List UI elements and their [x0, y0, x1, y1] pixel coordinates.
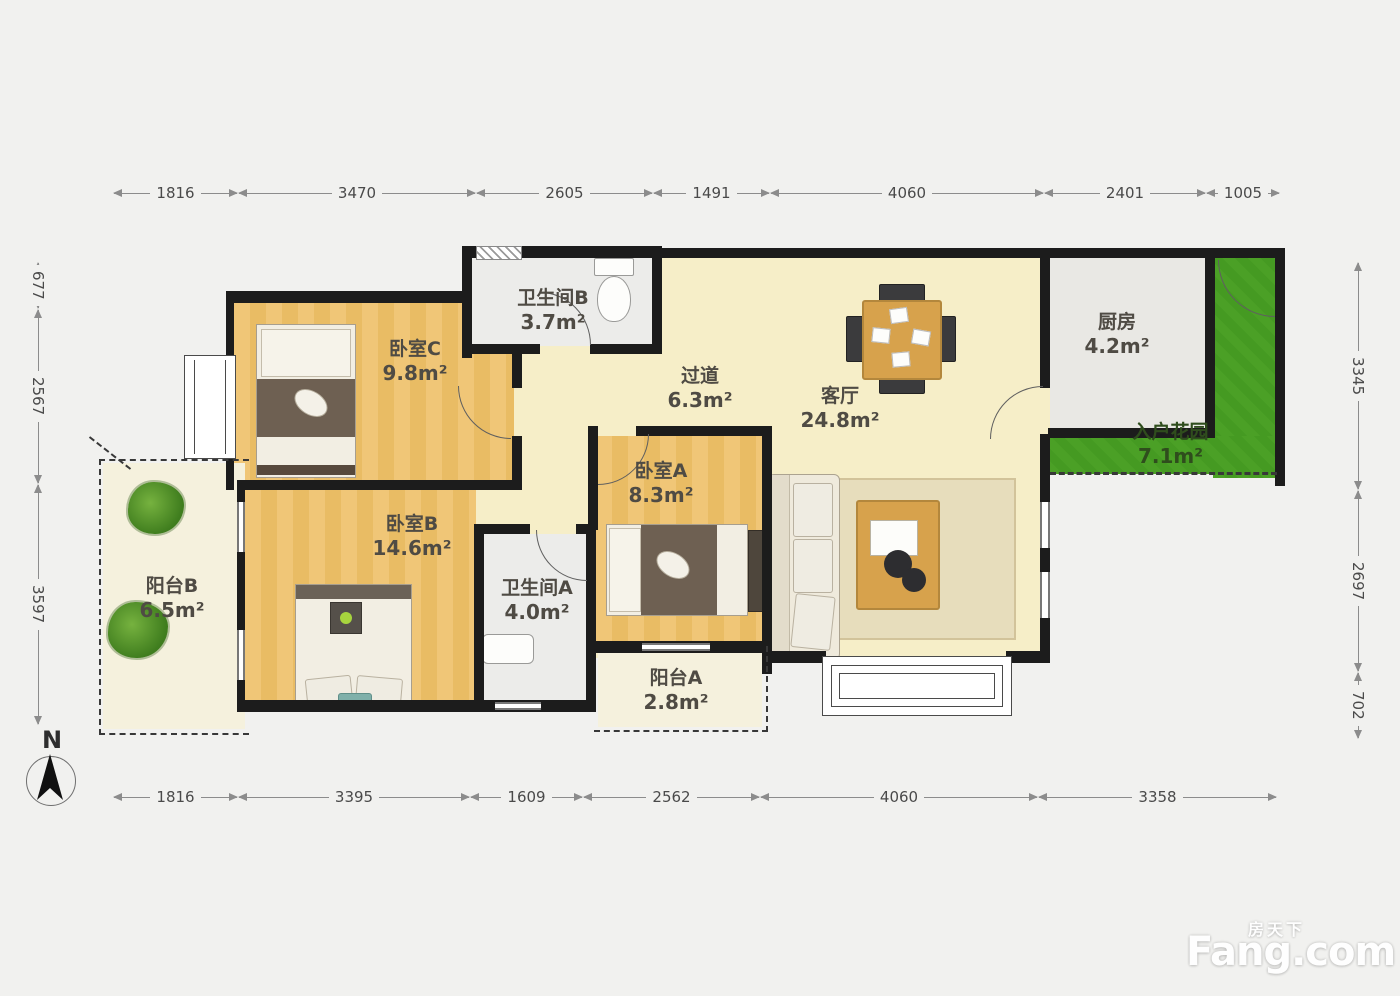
dining-table-icon [862, 300, 942, 380]
bed-icon [256, 324, 356, 478]
watermark-fang-logo: 房天下 Fang.com [1186, 916, 1390, 986]
dim-top-4: 4060 [770, 181, 1044, 205]
dim-value: 1816 [150, 184, 200, 202]
wall-segment [1275, 248, 1285, 486]
room-label-hallway: 过道 6.3m² [630, 364, 770, 414]
dim-value: 1816 [150, 788, 200, 806]
dim-value: 3358 [1132, 788, 1182, 806]
room-name: 卧室C [345, 337, 485, 361]
dim-value: 702 [1349, 685, 1367, 726]
dim-value: 3470 [332, 184, 382, 202]
dim-top-0: 1816 [113, 181, 238, 205]
room-area: 4.0m² [467, 600, 607, 626]
room-area: 2.8m² [606, 690, 746, 716]
plate-icon [871, 327, 890, 344]
room-name: 卧室A [591, 459, 731, 483]
dim-value: 1005 [1218, 184, 1268, 202]
room-label-balcony-b: 阳台B 6.5m² [102, 574, 242, 624]
dim-bottom-2: 1609 [470, 785, 583, 809]
nightstand-icon [330, 602, 362, 634]
room-area: 6.3m² [630, 388, 770, 414]
dim-right-0: 3345 [1346, 262, 1370, 490]
dim-value: 2562 [646, 788, 696, 806]
dim-bottom-0: 1816 [113, 785, 238, 809]
wall-segment [226, 291, 472, 303]
coffee-table-icon [856, 500, 940, 610]
room-label-bedroom-b: 卧室B 14.6m² [342, 512, 482, 562]
sofa-icon [768, 474, 840, 660]
room-name: 卫生间B [483, 286, 623, 310]
window-frame [225, 360, 226, 454]
wall-segment [237, 480, 520, 490]
compass-label: N [42, 726, 62, 754]
sofa-cushion [793, 539, 833, 593]
bay-window-living-room [822, 656, 1012, 716]
wall-segment [654, 248, 1285, 258]
wall-segment [226, 291, 234, 365]
wall-segment [237, 700, 596, 712]
sofa-cushion [790, 593, 835, 651]
window-bathroom-b [476, 246, 522, 260]
room-name: 卧室B [342, 512, 482, 536]
plate-icon [889, 307, 909, 324]
room-area: 4.2m² [1042, 334, 1192, 360]
sink-icon [482, 634, 534, 664]
room-area: 6.5m² [102, 598, 242, 624]
entry-garden-boundary [1050, 472, 1277, 475]
dim-value: 2605 [539, 184, 589, 202]
room-label-balcony-a: 阳台A 2.8m² [606, 666, 746, 716]
plate-icon [911, 329, 931, 347]
room-name: 厨房 [1042, 310, 1192, 334]
wall-segment [762, 426, 772, 674]
room-area: 3.7m² [483, 310, 623, 336]
dim-value: 3345 [1349, 351, 1367, 401]
room-area: 9.8m² [345, 361, 485, 387]
bed-pillow [261, 329, 351, 377]
dim-value: 4060 [874, 788, 924, 806]
dim-bottom-5: 3358 [1038, 785, 1277, 809]
watermark-en: Fang.com [1186, 929, 1395, 975]
room-name: 入户花园 [1093, 420, 1248, 444]
bed-headboard [296, 585, 411, 599]
dim-right-1: 2697 [1346, 490, 1370, 672]
room-area: 14.6m² [342, 536, 482, 562]
wall-segment [764, 651, 826, 663]
dim-right-2: 702 [1346, 672, 1370, 739]
room-label-bedroom-a: 卧室A 8.3m² [591, 459, 731, 509]
dim-value: 2401 [1100, 184, 1150, 202]
room-name: 阳台B [102, 574, 242, 598]
dim-left-1: 2567 [26, 309, 50, 484]
dim-value: 2567 [29, 371, 47, 421]
sofa-cushion [793, 483, 833, 537]
bed-icon [606, 524, 748, 616]
room-area: 7.1m² [1093, 444, 1248, 470]
dim-bottom-1: 3395 [238, 785, 470, 809]
room-name: 客厅 [768, 384, 912, 408]
wall-segment [474, 524, 530, 534]
wall-segment [636, 426, 772, 436]
dimension-row-top: 1816 3470 2605 1491 4060 2401 1005 [113, 181, 1280, 205]
bed-pillow [609, 528, 641, 612]
wall-segment [512, 352, 522, 388]
dim-left-2: 3597 [26, 484, 50, 725]
dim-top-5: 2401 [1044, 181, 1206, 205]
dim-value: 1491 [686, 184, 736, 202]
wall-segment [1040, 434, 1050, 490]
window-frame [194, 360, 195, 454]
room-label-living-room: 客厅 24.8m² [768, 384, 912, 434]
plate-icon [891, 351, 910, 368]
room-label-bathroom-a: 卫生间A 4.0m² [467, 576, 607, 626]
dim-value: 677 [29, 265, 47, 306]
dimension-row-bottom: 1816 3395 1609 2562 4060 3358 [113, 785, 1277, 809]
room-name: 卫生间A [467, 576, 607, 600]
sofa-backrest [769, 475, 790, 659]
dim-top-6: 1005 [1206, 181, 1280, 205]
room-label-bedroom-c: 卧室C 9.8m² [345, 337, 485, 387]
dim-top-2: 2605 [476, 181, 653, 205]
dim-top-1: 3470 [238, 181, 476, 205]
dim-bottom-3: 2562 [583, 785, 760, 809]
dim-left-0: 677 [26, 262, 50, 309]
room-name: 过道 [630, 364, 770, 388]
floorplan-canvas: 卧室C 9.8m² 卫生间B 3.7m² 过道 6.3m² 客厅 24.8m² … [0, 0, 1400, 996]
dim-value: 3597 [29, 579, 47, 629]
dim-bottom-4: 4060 [760, 785, 1038, 809]
toilet-tank [594, 258, 634, 276]
dimension-col-right: 3345 2697 702 [1346, 262, 1370, 739]
window-bay-bedroom-c [184, 355, 236, 459]
window-living-room [1040, 572, 1050, 618]
room-area: 8.3m² [591, 483, 731, 509]
dim-top-3: 1491 [653, 181, 770, 205]
room-area: 24.8m² [768, 408, 912, 434]
dim-value: 1609 [501, 788, 551, 806]
bed-footboard [257, 465, 355, 475]
room-label-kitchen: 厨房 4.2m² [1042, 310, 1192, 360]
wall-segment [590, 344, 662, 354]
room-label-entry-garden: 入户花园 7.1m² [1093, 420, 1248, 470]
dim-value: 4060 [882, 184, 932, 202]
window-bathroom-a [495, 702, 541, 710]
north-compass: N [18, 726, 88, 816]
lamp-icon [340, 612, 352, 624]
window-living-room [1040, 502, 1050, 548]
room-label-bathroom-b: 卫生间B 3.7m² [483, 286, 623, 336]
dim-value: 3395 [329, 788, 379, 806]
wall-segment [652, 246, 662, 354]
wall-segment [1205, 248, 1215, 438]
dimension-col-left: 677 2567 3597 [26, 262, 50, 725]
window-frame [839, 673, 995, 699]
room-name: 阳台A [606, 666, 746, 690]
dim-value: 2697 [1349, 556, 1367, 606]
kettle-icon [902, 568, 926, 592]
